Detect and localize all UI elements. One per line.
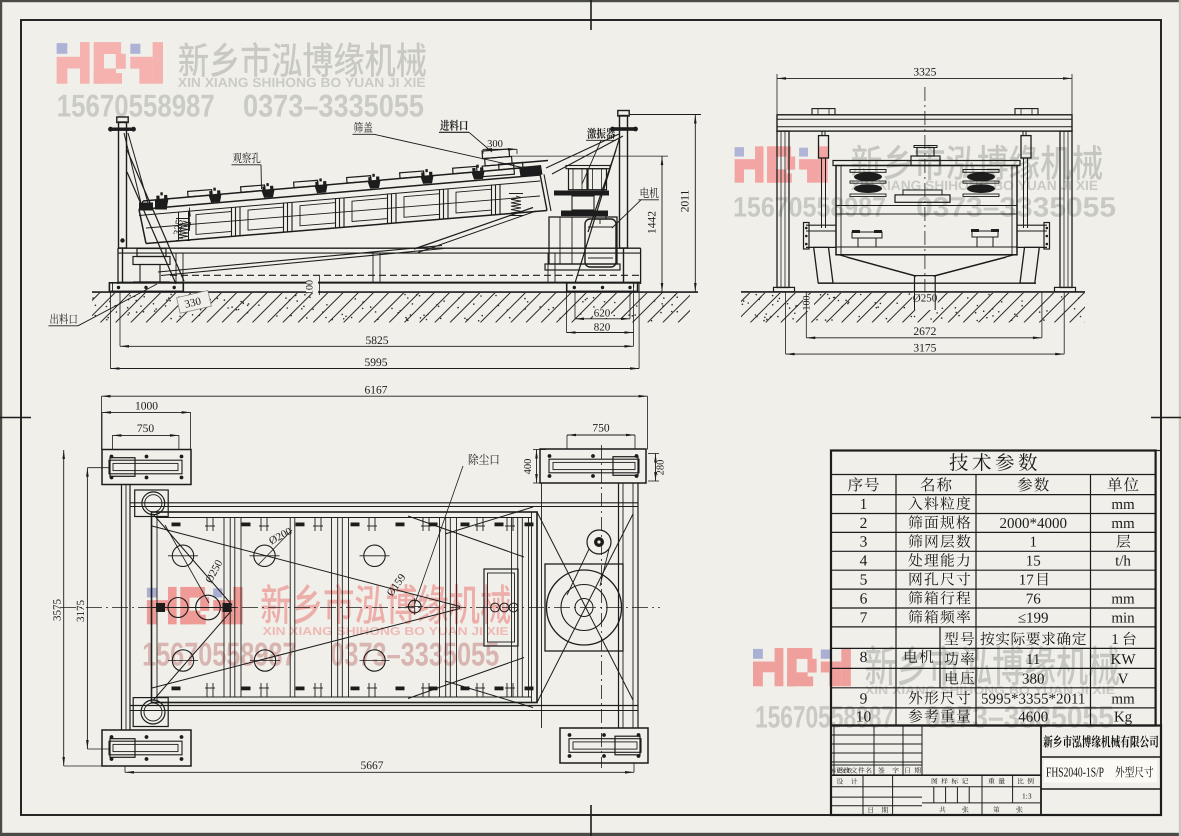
svg-text:Kg: Kg bbox=[1114, 710, 1133, 726]
svg-text:1: 1 bbox=[860, 496, 868, 513]
svg-text:5667: 5667 bbox=[361, 760, 384, 772]
svg-text:3: 3 bbox=[860, 534, 868, 551]
svg-text:3325: 3325 bbox=[913, 66, 936, 78]
svg-text:10: 10 bbox=[856, 709, 872, 726]
svg-text:100: 100 bbox=[802, 296, 813, 311]
svg-text:4: 4 bbox=[860, 553, 868, 570]
svg-text:7: 7 bbox=[860, 609, 868, 626]
svg-text:100: 100 bbox=[305, 280, 316, 295]
svg-text:2: 2 bbox=[860, 515, 868, 532]
svg-text:t/h: t/h bbox=[1115, 554, 1131, 570]
svg-text:0373–3335055: 0373–3335055 bbox=[243, 87, 424, 123]
svg-text:400: 400 bbox=[523, 459, 534, 475]
svg-text:6167: 6167 bbox=[365, 385, 388, 397]
svg-text:820: 820 bbox=[594, 322, 611, 334]
svg-text:11: 11 bbox=[1026, 652, 1040, 668]
svg-text:15: 15 bbox=[1026, 554, 1041, 570]
svg-text:mm: mm bbox=[1111, 691, 1135, 707]
svg-text:3175: 3175 bbox=[913, 342, 936, 354]
svg-text:5995: 5995 bbox=[365, 357, 388, 369]
svg-text:1: 1 bbox=[1029, 535, 1037, 551]
svg-text:5995*3355*2011: 5995*3355*2011 bbox=[981, 691, 1085, 707]
svg-text:FHS2040-1S/P: FHS2040-1S/P bbox=[1046, 765, 1104, 780]
svg-text:KW: KW bbox=[1111, 652, 1137, 668]
svg-text:300: 300 bbox=[487, 139, 503, 150]
svg-text:V: V bbox=[1118, 672, 1129, 688]
svg-text:8: 8 bbox=[860, 649, 868, 666]
svg-text:5: 5 bbox=[860, 572, 868, 589]
svg-text:4600: 4600 bbox=[1018, 710, 1048, 726]
svg-text:2000*4000: 2000*4000 bbox=[999, 516, 1067, 532]
svg-text:3575: 3575 bbox=[52, 599, 64, 622]
svg-text:15670558987: 15670558987 bbox=[755, 700, 894, 735]
svg-text:15670558987: 15670558987 bbox=[57, 87, 215, 123]
svg-text:2011: 2011 bbox=[680, 189, 692, 212]
svg-text:mm: mm bbox=[1111, 497, 1135, 513]
svg-text:620: 620 bbox=[594, 308, 611, 320]
svg-text:3175: 3175 bbox=[75, 600, 87, 623]
svg-text:9: 9 bbox=[860, 690, 868, 707]
svg-text:min: min bbox=[1111, 610, 1135, 626]
svg-text:1:3: 1:3 bbox=[1022, 792, 1032, 801]
svg-text:750: 750 bbox=[592, 423, 610, 435]
svg-text:6: 6 bbox=[860, 590, 868, 607]
svg-text:1442: 1442 bbox=[647, 211, 659, 234]
svg-text:17: 17 bbox=[1019, 573, 1035, 589]
svg-text:380: 380 bbox=[1022, 672, 1045, 688]
svg-text:0373–3335055: 0373–3335055 bbox=[330, 636, 499, 673]
svg-text:76: 76 bbox=[1026, 591, 1042, 607]
svg-text:750: 750 bbox=[137, 423, 155, 435]
svg-text:Ø250: Ø250 bbox=[913, 293, 938, 305]
svg-text:2672: 2672 bbox=[913, 326, 936, 338]
svg-text:1: 1 bbox=[1111, 632, 1119, 648]
svg-text:280: 280 bbox=[656, 460, 667, 476]
svg-text:≤199: ≤199 bbox=[1018, 610, 1049, 626]
svg-text:mm: mm bbox=[1111, 516, 1135, 532]
svg-text:1000: 1000 bbox=[135, 401, 158, 413]
svg-text:5825: 5825 bbox=[366, 335, 389, 347]
svg-text:mm: mm bbox=[1111, 591, 1135, 607]
svg-text:0373–3335055: 0373–3335055 bbox=[916, 192, 1116, 223]
